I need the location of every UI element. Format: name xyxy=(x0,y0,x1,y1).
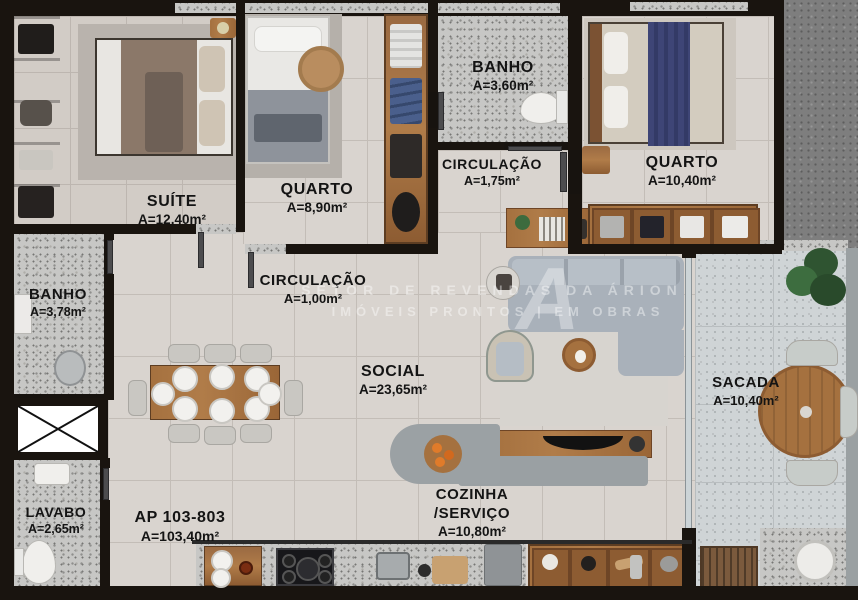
wardrobe1-shirts xyxy=(390,24,422,68)
suite-closet xyxy=(14,16,60,224)
quarto2-pillow-1 xyxy=(604,32,628,74)
wall-quarto2-left-b xyxy=(568,194,582,254)
suite-bed xyxy=(95,38,233,156)
suite-nightstand xyxy=(210,18,236,38)
sideboard-plant xyxy=(515,215,530,230)
orange-fruit xyxy=(432,443,442,453)
unit-area: A=103,40m² xyxy=(134,528,225,546)
suite-throw xyxy=(145,72,183,152)
quarto2-pillow-2 xyxy=(604,86,628,128)
lavabo-label: LAVABO A=2,65m² xyxy=(26,504,87,537)
wardrobe1-shoes xyxy=(390,134,422,178)
dining-chair xyxy=(204,426,236,445)
dining-chair xyxy=(168,344,200,363)
closet-items-shoes xyxy=(18,186,54,218)
suite-area: A=12,40m² xyxy=(138,212,206,229)
watermark-line1: SETOR DE REVENDAS DA ÁRION xyxy=(301,282,683,298)
social-label: SOCIAL A=23,65m² xyxy=(359,362,427,399)
suite-door-leaf xyxy=(198,232,204,268)
laundry-tub xyxy=(794,540,836,582)
wall-sacada-left-top xyxy=(682,244,696,258)
tv-console xyxy=(488,430,652,458)
window-sill-top-1 xyxy=(175,3,560,13)
sofa-chaise xyxy=(618,330,684,376)
quarto2-blue-throw xyxy=(648,22,690,146)
sacada-name: SACADA xyxy=(712,374,780,393)
sacada-chair xyxy=(786,460,838,486)
shaft-x-icon xyxy=(18,406,98,452)
burner xyxy=(282,554,296,568)
wardrobe1-bag xyxy=(392,192,420,232)
quarto1-door-leaf xyxy=(248,252,254,288)
banho1-label: BANHO A=3,60m² xyxy=(472,58,534,95)
watermark-line2: IMÓVEIS PRONTOS | EM OBRAS xyxy=(332,304,665,319)
burner-center xyxy=(296,557,320,581)
wall-banho1-left-b xyxy=(428,128,438,254)
service-cell-2 xyxy=(570,548,608,588)
folded-white-2 xyxy=(722,216,748,238)
wall-lavabo-right-b xyxy=(100,500,110,588)
banho1-name: BANHO xyxy=(472,58,534,78)
orange-fruit xyxy=(444,450,454,460)
stove-cooktop xyxy=(276,548,334,586)
quarto1-area: A=8,90m² xyxy=(281,200,354,217)
service-cell-1 xyxy=(532,548,570,588)
wall-suite-quarto1 xyxy=(236,0,245,232)
banho2-name: BANHO xyxy=(29,286,87,305)
cozinha-label: COZINHA /SERVIÇO A=10,80m² xyxy=(434,486,510,540)
dining-chair xyxy=(240,344,272,363)
wall-banho1-left-a xyxy=(428,0,438,92)
wall-banho1-bottom xyxy=(438,142,504,150)
dining-chair xyxy=(128,380,147,416)
dining-chair xyxy=(240,424,272,443)
quarto2-label: QUARTO A=10,40m² xyxy=(646,153,719,190)
quarto2-nightstand xyxy=(582,146,610,174)
quarto1-throw xyxy=(254,114,322,142)
dining-chair xyxy=(204,344,236,363)
circulacao1-label: CIRCULAÇÃO A=1,75m² xyxy=(442,156,542,189)
floor-plan: SUÍTE A=12,40m² QUARTO A=8,90m² BANHO A=… xyxy=(0,0,858,600)
banho2-door-leaf xyxy=(107,240,113,274)
cutting-board xyxy=(432,556,468,584)
cozinha-area: A=10,80m² xyxy=(434,524,510,541)
sacada-plant xyxy=(786,248,846,310)
pan xyxy=(418,564,431,577)
folded-white-1 xyxy=(680,216,704,238)
sacada-label: SACADA A=10,40m² xyxy=(712,374,780,409)
quarto1-round-rug xyxy=(298,46,344,92)
wardrobe1-jeans xyxy=(390,78,422,124)
quarto1-name: QUARTO xyxy=(281,180,354,200)
quarto2-bed xyxy=(588,22,724,144)
burner xyxy=(282,570,296,584)
bowl xyxy=(239,561,253,575)
lavabo-area: A=2,65m² xyxy=(26,522,87,538)
quarto2-door-leaf xyxy=(560,152,567,192)
cozinha-name: COZINHA xyxy=(434,486,510,505)
suite-pillow-2 xyxy=(199,100,225,146)
plate xyxy=(211,568,231,588)
unit-label: AP 103-803 A=103,40m² xyxy=(134,508,225,546)
dining-chair xyxy=(168,424,200,443)
wall-left xyxy=(0,0,14,588)
sacada-area: A=10,40m² xyxy=(712,393,780,409)
metal-tin xyxy=(630,555,642,579)
shelf-cell-2 xyxy=(632,208,672,246)
plate xyxy=(209,398,235,424)
service-cabinets xyxy=(528,544,688,588)
social-area: A=23,65m² xyxy=(359,382,427,399)
plate xyxy=(172,396,198,422)
orange-fruit xyxy=(435,457,445,467)
suite-pillow-1 xyxy=(199,46,225,92)
quarto2-shelf-unit xyxy=(588,204,758,246)
banho1-toilet-tank xyxy=(556,90,568,124)
circulacao1-name: CIRCULAÇÃO xyxy=(442,156,542,174)
burner xyxy=(318,554,332,568)
shelf-cell-4 xyxy=(712,208,760,246)
coffee-table-decor xyxy=(575,350,586,363)
service-cell-3 xyxy=(608,548,650,588)
drying-rack xyxy=(700,546,758,588)
lavabo-toilet-bowl xyxy=(22,540,56,584)
sacada-sliding-glass-door xyxy=(685,258,692,530)
fruit-tray xyxy=(424,435,462,473)
wall-bottom xyxy=(0,586,858,600)
closet-items-bag xyxy=(20,100,52,126)
plate xyxy=(172,366,198,392)
wall-lavabo-right-a xyxy=(100,458,110,468)
lavabo-name: LAVABO xyxy=(26,504,87,522)
watermark-logo: A xyxy=(516,248,580,350)
sacada-chair xyxy=(840,386,858,438)
wall-quarto1-bottom xyxy=(286,244,429,254)
folded-dark xyxy=(640,216,664,238)
circulacao1-door-leaf xyxy=(508,146,562,151)
shelf-cell-1 xyxy=(592,208,632,246)
banho1-door-leaf xyxy=(438,92,444,130)
wall-sacada-left-bottom xyxy=(682,528,696,590)
closet-items-towels xyxy=(19,150,53,170)
kitchen-sink xyxy=(376,552,410,580)
quarto1-label: QUARTO A=8,90m² xyxy=(281,180,354,217)
window-sill-top-2 xyxy=(630,2,748,11)
quarto2-area: A=10,40m² xyxy=(646,173,719,190)
dining-chair xyxy=(284,380,303,416)
cozinha-name2: /SERVIÇO xyxy=(434,505,510,524)
suite-name: SUÍTE xyxy=(138,192,206,212)
shaft-box xyxy=(10,398,106,460)
wall-banho2-right-b xyxy=(104,274,114,400)
wall-quarto2-left-a xyxy=(568,0,582,150)
tv-speaker xyxy=(629,436,645,452)
kitchen-counter-edge xyxy=(192,540,692,544)
lavabo-toilet-tank xyxy=(14,548,24,576)
shelf-cell-3 xyxy=(672,208,712,246)
quarto2-name: QUARTO xyxy=(646,153,719,173)
suite-label: SUÍTE A=12,40m² xyxy=(138,192,206,229)
lavabo-door-leaf xyxy=(103,468,109,500)
bowl-white xyxy=(542,554,558,570)
sideboard-books xyxy=(539,217,565,241)
suite-lamp xyxy=(217,22,229,34)
kitchen-appliance xyxy=(484,544,522,586)
plate xyxy=(209,364,235,390)
banho2-area: A=3,78m² xyxy=(29,305,87,321)
plate xyxy=(258,382,282,406)
closet-items-dark xyxy=(18,24,54,54)
sacada-table-center xyxy=(800,406,812,418)
social-name: SOCIAL xyxy=(359,362,427,382)
quarto1-wardrobe xyxy=(384,14,428,244)
banho2-toilet xyxy=(54,350,86,386)
kitchen-island xyxy=(390,424,500,484)
plant-leaf xyxy=(810,274,846,306)
unit-code: AP 103-803 xyxy=(134,508,225,528)
banho2-label: BANHO A=3,78m² xyxy=(29,286,87,320)
quarto2-headboard xyxy=(590,24,602,142)
circulacao1-area: A=1,75m² xyxy=(442,174,542,190)
plate-dark xyxy=(581,556,596,571)
banho1-area: A=3,60m² xyxy=(472,78,534,95)
wall-quarto2-right xyxy=(774,0,784,250)
lavabo-sink xyxy=(34,463,70,485)
kitchen-cabinet-left xyxy=(204,546,262,586)
plate xyxy=(151,382,175,406)
folded-gray xyxy=(600,216,624,238)
sacada-chair xyxy=(786,340,838,366)
tv-screen xyxy=(543,436,623,450)
wall-banho2-right-a xyxy=(104,224,114,240)
exterior-wall-texture xyxy=(784,0,858,248)
burner xyxy=(318,570,332,584)
gray-item xyxy=(660,556,678,572)
